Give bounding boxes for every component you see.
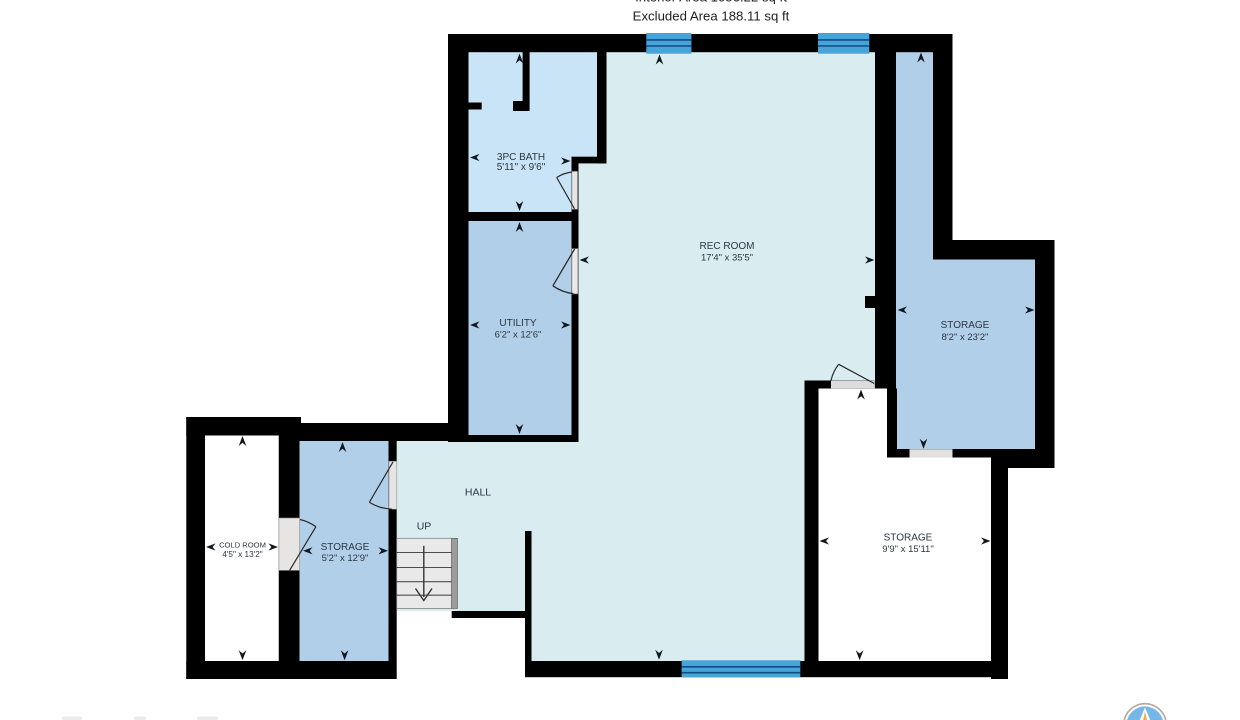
svg-text:UTILITY: UTILITY xyxy=(499,318,537,329)
svg-text:STORAGE: STORAGE xyxy=(321,542,370,553)
svg-text:HALL: HALL xyxy=(465,487,491,499)
svg-text:UP: UP xyxy=(417,521,432,533)
svg-text:5'2" x 12'9": 5'2" x 12'9" xyxy=(322,553,369,564)
svg-text:9'9" x 15'11": 9'9" x 15'11" xyxy=(882,544,933,555)
svg-text:4'5" x 13'2": 4'5" x 13'2" xyxy=(222,550,262,559)
svg-text:Excluded Area 188.11 sq ft: Excluded Area 188.11 sq ft xyxy=(633,9,790,24)
svg-text:17'4" x 35'5": 17'4" x 35'5" xyxy=(701,253,753,264)
svg-text:5'11" x 9'6": 5'11" x 9'6" xyxy=(497,162,546,173)
svg-text:Interior Area 1056.22 sq ft: Interior Area 1056.22 sq ft xyxy=(635,0,787,5)
svg-text:REC ROOM: REC ROOM xyxy=(700,241,755,252)
svg-text:STORAGE: STORAGE xyxy=(941,320,990,331)
svg-text:8'2" x 23'2": 8'2" x 23'2" xyxy=(942,332,989,343)
svg-text:COLD ROOM: COLD ROOM xyxy=(219,541,266,550)
svg-text:6'2" x 12'6": 6'2" x 12'6" xyxy=(495,330,542,341)
svg-text:STORAGE: STORAGE xyxy=(884,533,933,544)
